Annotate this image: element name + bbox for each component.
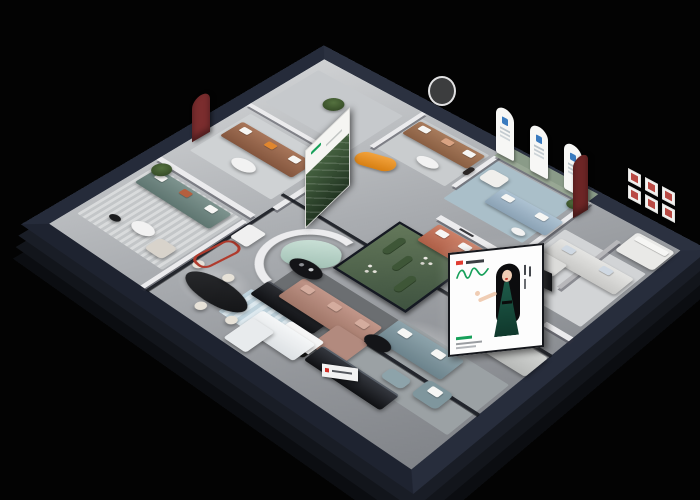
bed-pillow [634, 236, 670, 257]
caption-green-line [456, 336, 472, 341]
sofa-cushion [300, 284, 316, 295]
sofa-cushion [561, 245, 577, 255]
cactus [392, 275, 418, 293]
sofa-cushion [434, 229, 450, 239]
sofa-cushion [417, 125, 432, 134]
sofa-cushion [204, 204, 219, 214]
sign-text-line [332, 370, 352, 375]
framed-print [662, 186, 675, 206]
sofa-cushion [500, 194, 515, 203]
brand-billboard [448, 243, 544, 357]
framed-print [645, 177, 658, 197]
cactus [390, 255, 414, 271]
woman-arm [478, 291, 497, 302]
sofa-cushion [287, 155, 302, 164]
sofa-cushion [239, 127, 253, 136]
banner-text-lines [500, 126, 510, 133]
framed-print [645, 194, 658, 214]
vertical-caption [524, 265, 526, 275]
round-wall-mirror [428, 76, 456, 106]
white-flowers [367, 264, 373, 268]
vase [298, 262, 305, 267]
sofa-cushion [397, 328, 414, 339]
billboard-script-logo [455, 264, 491, 283]
sofa-cushion [178, 189, 193, 198]
sofa-cushion [534, 212, 550, 222]
billboard-brand-text [466, 259, 484, 264]
caption-grey-line [456, 340, 482, 345]
woman-hand [475, 291, 480, 297]
floor-plate [21, 45, 700, 494]
framed-print [628, 168, 641, 188]
sofa-cushion [430, 349, 447, 361]
framed-print [628, 185, 641, 205]
poster-logo [311, 142, 321, 155]
sofa-cushion [263, 141, 278, 150]
sofa-cushion [440, 138, 455, 147]
sofa-cushion [327, 301, 343, 312]
arch-banner [530, 122, 548, 180]
sofa-cushion [354, 319, 371, 330]
banner-text-lines [534, 144, 544, 151]
cactus [381, 237, 408, 255]
red-arch-niche-east [573, 152, 588, 219]
arch-banner [496, 104, 514, 162]
showroom-render [0, 0, 700, 500]
billboard-red-chip [456, 260, 463, 265]
caption-grey-line [456, 345, 476, 349]
vase [307, 267, 314, 272]
blue-logo-icon [536, 134, 542, 144]
sofa-cushion [598, 265, 614, 275]
sofa-cushion [426, 386, 443, 398]
red-logo-icon [325, 368, 329, 373]
white-flowers [423, 256, 429, 260]
blue-logo-icon [502, 116, 508, 126]
framed-print [662, 203, 675, 223]
sofa-cushion [462, 149, 477, 158]
